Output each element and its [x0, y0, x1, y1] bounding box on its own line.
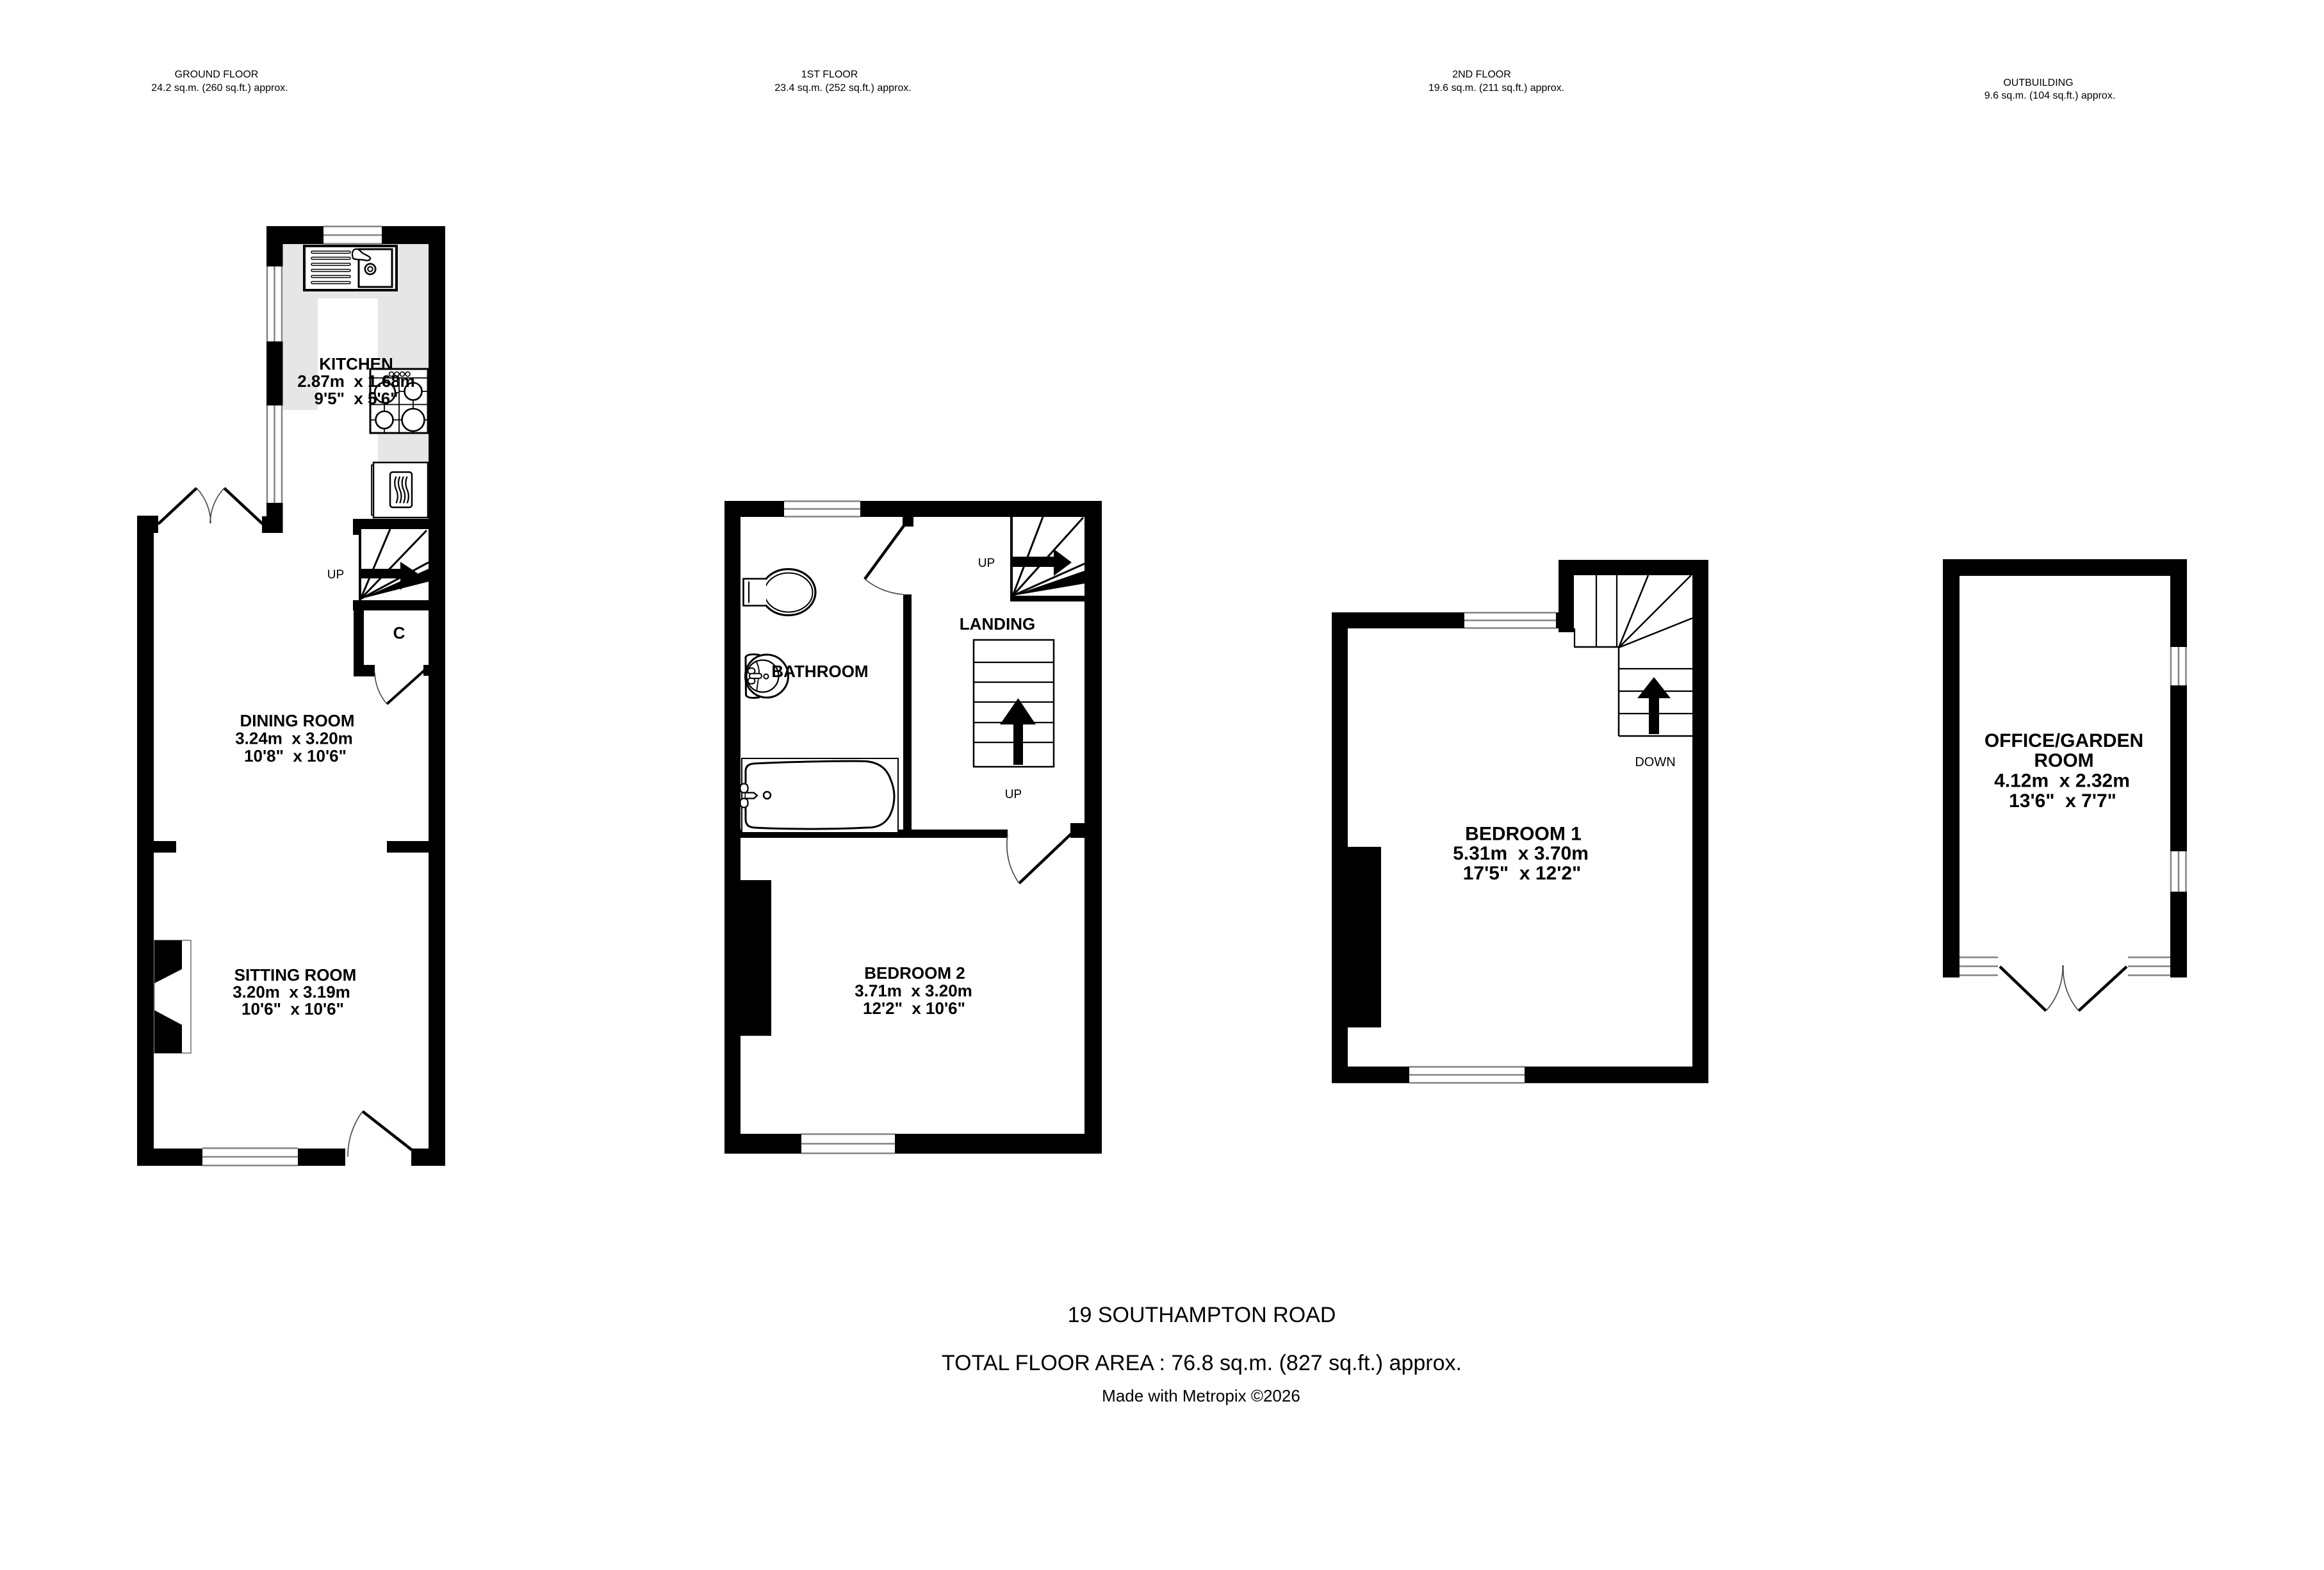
svg-text:10'6" x 10'6": 10'6" x 10'6": [241, 999, 344, 1018]
svg-text:13'6" x 7'7": 13'6" x 7'7": [2009, 790, 2116, 812]
svg-text:9'5" x 5'6": 9'5" x 5'6": [315, 389, 398, 408]
svg-text:SITTING ROOM: SITTING ROOM: [234, 965, 357, 985]
svg-text:BEDROOM 1: BEDROOM 1: [1465, 824, 1582, 845]
svg-text:UP: UP: [327, 568, 344, 582]
svg-text:UP: UP: [978, 557, 995, 570]
svg-text:19 SOUTHAMPTON ROAD: 19 SOUTHAMPTON ROAD: [1068, 1303, 1336, 1327]
svg-text:3.24m x 3.20m: 3.24m x 3.20m: [235, 729, 353, 748]
svg-text:Made with Metropix ©2026: Made with Metropix ©2026: [1102, 1386, 1300, 1405]
svg-text:5.31m x 3.70m: 5.31m x 3.70m: [1453, 843, 1589, 864]
svg-text:DINING ROOM: DINING ROOM: [240, 711, 354, 730]
svg-text:BATHROOM: BATHROOM: [771, 662, 868, 681]
svg-text:TOTAL FLOOR AREA : 76.8 sq.m.: TOTAL FLOOR AREA : 76.8 sq.m. (827 sq.ft…: [942, 1351, 1462, 1375]
svg-text:OUTBUILDING: OUTBUILDING: [2003, 78, 2073, 88]
svg-text:UP: UP: [1005, 788, 1022, 801]
svg-text:10'8" x 10'6": 10'8" x 10'6": [244, 746, 347, 765]
svg-text:2.87m x 1.68m: 2.87m x 1.68m: [297, 372, 415, 391]
svg-text:3.20m x 3.19m: 3.20m x 3.19m: [233, 983, 350, 1002]
svg-text:DOWN: DOWN: [1635, 755, 1675, 769]
svg-text:19.6 sq.m. (211 sq.ft.) approx: 19.6 sq.m. (211 sq.ft.) approx.: [1428, 83, 1564, 94]
svg-text:1ST FLOOR: 1ST FLOOR: [801, 69, 858, 80]
svg-text:C: C: [393, 623, 405, 642]
svg-text:17'5" x 12'2": 17'5" x 12'2": [1463, 863, 1582, 884]
svg-text:23.4 sq.m. (252 sq.ft.) approx: 23.4 sq.m. (252 sq.ft.) approx.: [774, 83, 911, 94]
svg-text:BEDROOM 2: BEDROOM 2: [864, 963, 965, 983]
svg-text:2ND FLOOR: 2ND FLOOR: [1452, 69, 1511, 80]
svg-text:KITCHEN: KITCHEN: [319, 354, 393, 373]
svg-text:LANDING: LANDING: [960, 614, 1035, 634]
svg-text:9.6 sq.m. (104 sq.ft.) approx.: 9.6 sq.m. (104 sq.ft.) approx.: [1984, 90, 2116, 101]
svg-text:OFFICE/GARDEN: OFFICE/GARDEN: [1984, 730, 2143, 751]
svg-text:GROUND FLOOR: GROUND FLOOR: [175, 69, 259, 80]
svg-text:3.71m x 3.20m: 3.71m x 3.20m: [855, 981, 972, 1001]
svg-text:ROOM: ROOM: [2034, 750, 2093, 771]
svg-text:12'2" x 10'6": 12'2" x 10'6": [863, 999, 965, 1018]
svg-text:4.12m x 2.32m: 4.12m x 2.32m: [1994, 771, 2130, 792]
svg-text:24.2 sq.m. (260 sq.ft.) approx: 24.2 sq.m. (260 sq.ft.) approx.: [151, 83, 288, 94]
